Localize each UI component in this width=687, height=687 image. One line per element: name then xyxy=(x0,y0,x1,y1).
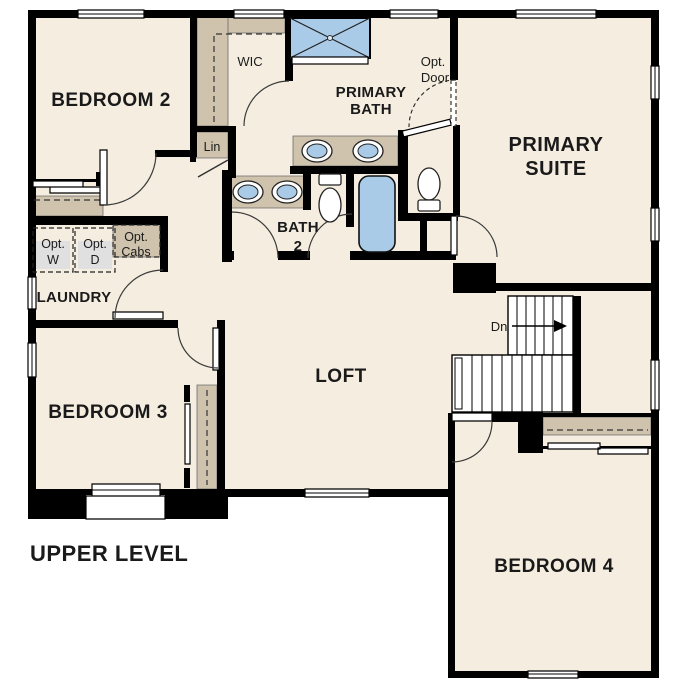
opt-washer-label-line1: Opt. xyxy=(41,237,65,251)
opt-cabs-label-line1: Opt. xyxy=(124,230,148,244)
toilet-bowl xyxy=(418,168,440,200)
bath2-toilet xyxy=(319,174,341,222)
floor-plan-drawing: BEDROOM 2 WIC PRIMARY BATH Opt. Door PRI… xyxy=(0,0,687,687)
bathtub xyxy=(359,176,395,252)
stairs-down-label: Dn xyxy=(491,319,508,334)
bedroom3-label: BEDROOM 3 xyxy=(48,402,168,423)
opt-cabs-label-line2: Cabs xyxy=(121,245,150,259)
shower xyxy=(290,18,370,64)
shower-glass-door xyxy=(292,57,368,64)
bedroom2-label: BEDROOM 2 xyxy=(51,90,171,111)
wic-label: WIC xyxy=(237,54,262,69)
primary-suite-label-line2: SUITE xyxy=(525,158,586,180)
toilet-bowl xyxy=(319,188,341,222)
stair-handrail xyxy=(455,358,462,409)
sink-basin xyxy=(358,144,378,158)
shower-drain xyxy=(328,36,333,41)
optional-door-leaf xyxy=(451,80,456,126)
plan-title: UPPER LEVEL xyxy=(30,541,188,566)
primary-bath-label-line2: BATH xyxy=(350,101,392,118)
primary-bath-label-line1: PRIMARY xyxy=(336,84,407,101)
bath2-label-line1: BATH xyxy=(277,219,319,236)
toilet-tank xyxy=(418,200,440,211)
linen-label: Lin xyxy=(204,140,221,154)
sink-basin xyxy=(307,144,327,158)
laundry-label: LAUNDRY xyxy=(37,289,112,306)
sink-basin xyxy=(277,185,297,199)
opt-washer-label-line2: W xyxy=(47,253,59,267)
floor-plan: BEDROOM 2 WIC PRIMARY BATH Opt. Door PRI… xyxy=(0,0,687,687)
opt-dryer-label-line1: Opt. xyxy=(83,237,107,251)
opt-dryer-label-line2: D xyxy=(90,253,99,267)
opt-door-label-line1: Opt. xyxy=(421,54,446,69)
opt-door-label-line2: Door xyxy=(421,70,450,85)
loft-label: LOFT xyxy=(315,366,367,387)
toilet-tank xyxy=(319,174,341,185)
bedroom4-label: BEDROOM 4 xyxy=(494,556,614,577)
primary-toilet xyxy=(418,168,440,211)
bath2-label-line2: 2 xyxy=(294,238,303,255)
sink-basin xyxy=(238,185,258,199)
primary-suite-label-line1: PRIMARY xyxy=(509,134,604,156)
